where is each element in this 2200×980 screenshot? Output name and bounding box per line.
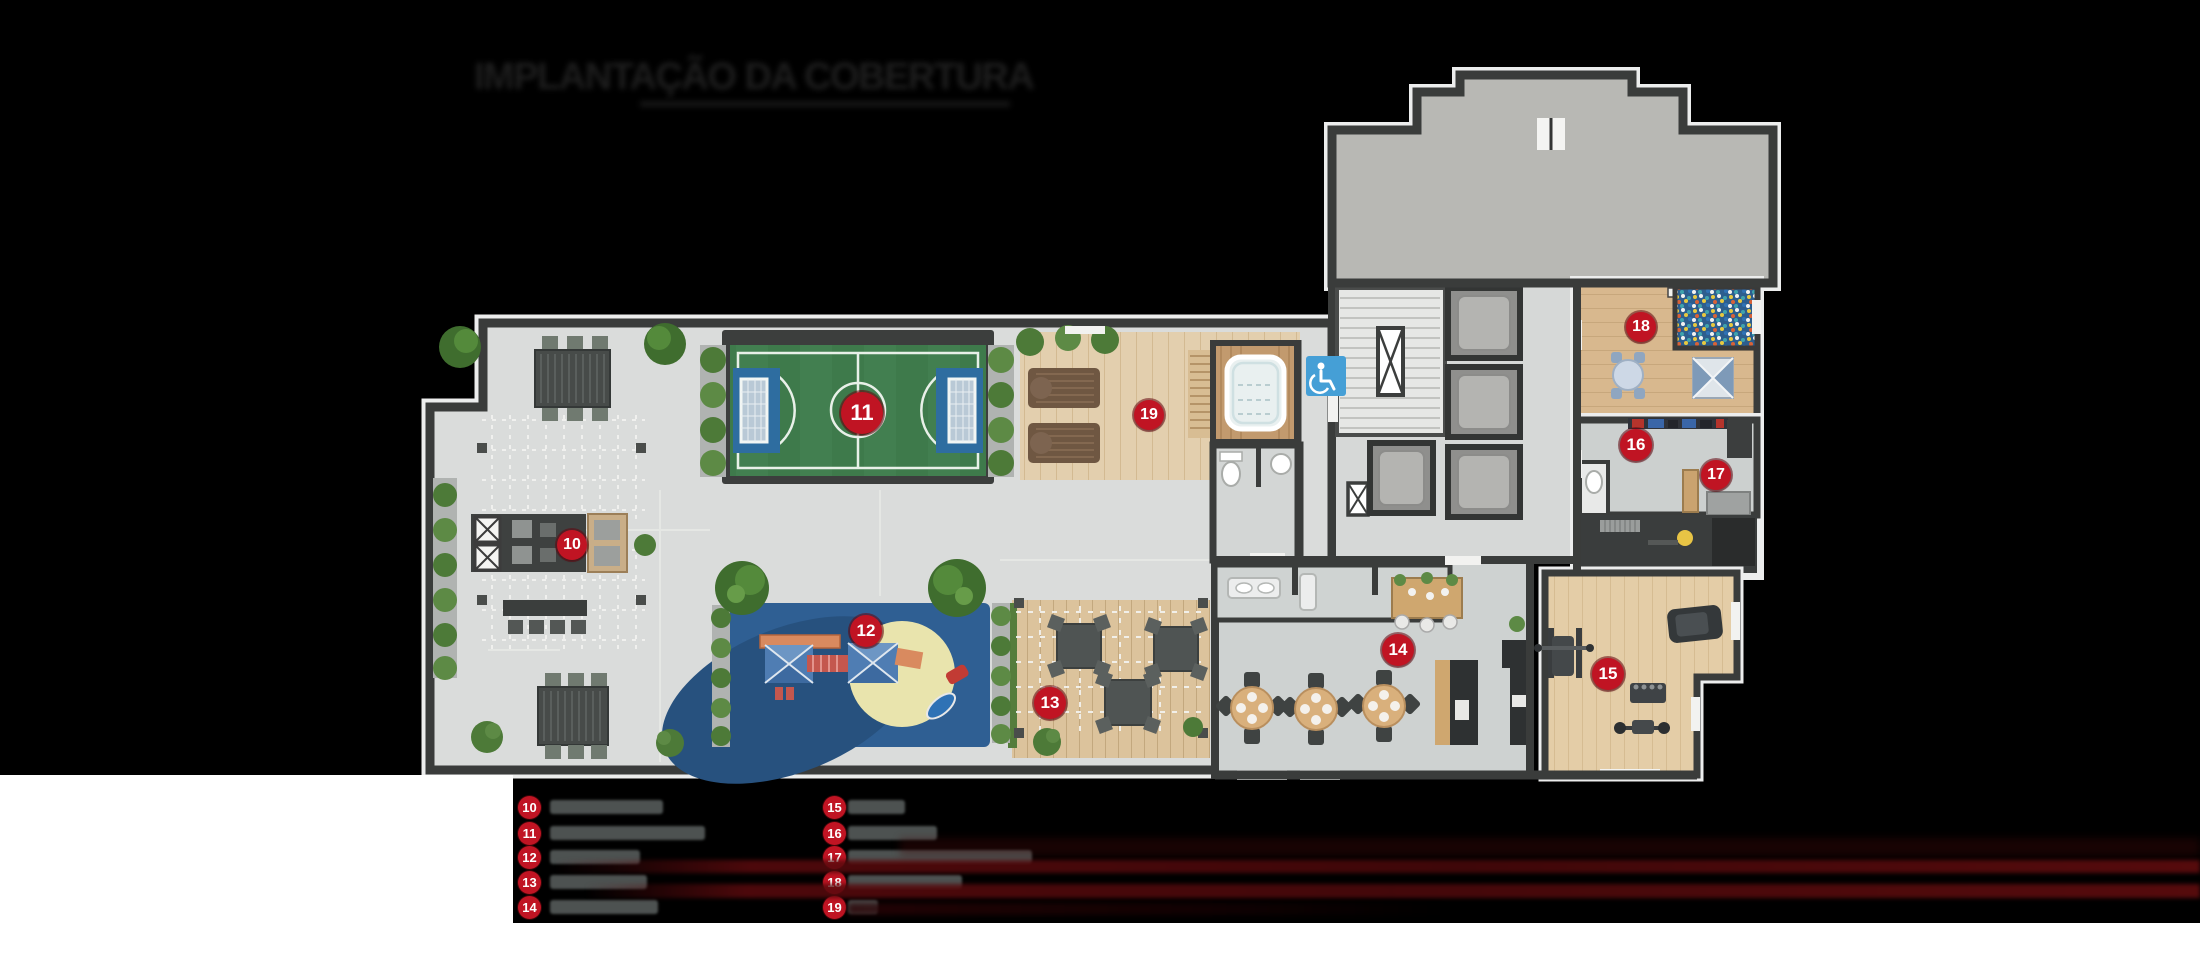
page-title: IMPLANTAÇÃO DA COBERTURA — [474, 56, 1034, 99]
spa-hot-tub — [1213, 343, 1297, 442]
legend-marker-14: 14 — [518, 896, 541, 919]
weight-bench — [1630, 683, 1666, 703]
plan-marker-12: 12 — [850, 615, 882, 647]
toilet — [1222, 462, 1240, 486]
play-tower-1 — [765, 645, 813, 683]
legend-marker-11: 11 — [518, 822, 541, 845]
planter-column-playground-left — [711, 605, 731, 747]
legend-marker-10: 10 — [518, 796, 541, 819]
party-room — [1215, 560, 1532, 780]
legend-marker-12: 12 — [518, 846, 541, 869]
plan-marker-10: 10 — [557, 530, 587, 560]
dining-table-long — [538, 673, 608, 759]
ball-pit — [1675, 287, 1757, 348]
goal-left — [733, 368, 780, 453]
red-blur-streak — [848, 903, 1448, 915]
sink — [1271, 454, 1291, 474]
white-margin-left — [0, 775, 513, 923]
media-shelf — [1628, 418, 1728, 429]
plan-marker-15: 15 — [1592, 658, 1624, 690]
plan-marker-18: 18 — [1626, 312, 1656, 342]
white-margin-bottom — [0, 923, 2200, 980]
washroom-fixture — [1580, 462, 1608, 515]
deck-bathroom — [1213, 445, 1300, 563]
treadmill — [1666, 604, 1723, 643]
title-blur-smear — [640, 101, 1010, 107]
plan-marker-19: 19 — [1134, 400, 1164, 430]
massage-table — [1707, 492, 1750, 515]
legend-marker-13: 13 — [518, 871, 541, 894]
legend-label-redacted-14 — [550, 900, 658, 914]
play-tent — [1693, 358, 1733, 398]
legend-marker-15: 15 — [823, 796, 846, 819]
round-dining-tables — [1215, 670, 1422, 745]
legend-label-redacted-11 — [550, 826, 705, 840]
bbq-counter — [471, 514, 627, 572]
plan-marker-16: 16 — [1620, 429, 1652, 461]
high-bar — [1392, 572, 1462, 632]
rooftop-hall — [1332, 75, 1773, 283]
planter-column-field-left — [700, 345, 726, 477]
dining-table-long — [535, 336, 610, 421]
wheelchair-icon — [1306, 356, 1346, 396]
games-room — [1573, 418, 1757, 573]
kids-room — [1573, 283, 1761, 420]
planter-column-field-right — [988, 345, 1014, 477]
gym — [1534, 573, 1740, 778]
planter-column-terrace-left — [433, 478, 457, 680]
legend-label-redacted-15 — [848, 800, 905, 814]
exercise-ball — [1677, 530, 1693, 546]
wood-door — [1683, 470, 1698, 512]
red-blur-streak — [555, 860, 2200, 873]
legend-label-redacted-10 — [550, 800, 663, 814]
potted-plant — [1509, 616, 1525, 632]
red-blur-streak — [900, 838, 2200, 856]
planter-column-playground-right — [991, 603, 1011, 744]
plan-marker-11: 11 — [841, 392, 883, 434]
legend-marker-16: 16 — [823, 822, 846, 845]
dark-counter-band — [1577, 515, 1757, 573]
legend-marker-19: 19 — [823, 896, 846, 919]
deck-table-set — [1047, 614, 1111, 678]
plan-marker-14: 14 — [1382, 634, 1414, 666]
hall-double-door — [1537, 118, 1565, 150]
deck-table-set — [1095, 670, 1161, 734]
floorplan-page: IMPLANTAÇÃO DA COBERTURA 10 11 12 13 14 … — [0, 0, 2200, 980]
building-core — [1332, 283, 1577, 560]
play-tower-2 — [848, 643, 898, 683]
plan-marker-17: 17 — [1701, 460, 1731, 490]
plan-marker-13: 13 — [1034, 687, 1066, 719]
red-blur-streak — [585, 884, 2200, 898]
goal-right — [936, 368, 983, 453]
